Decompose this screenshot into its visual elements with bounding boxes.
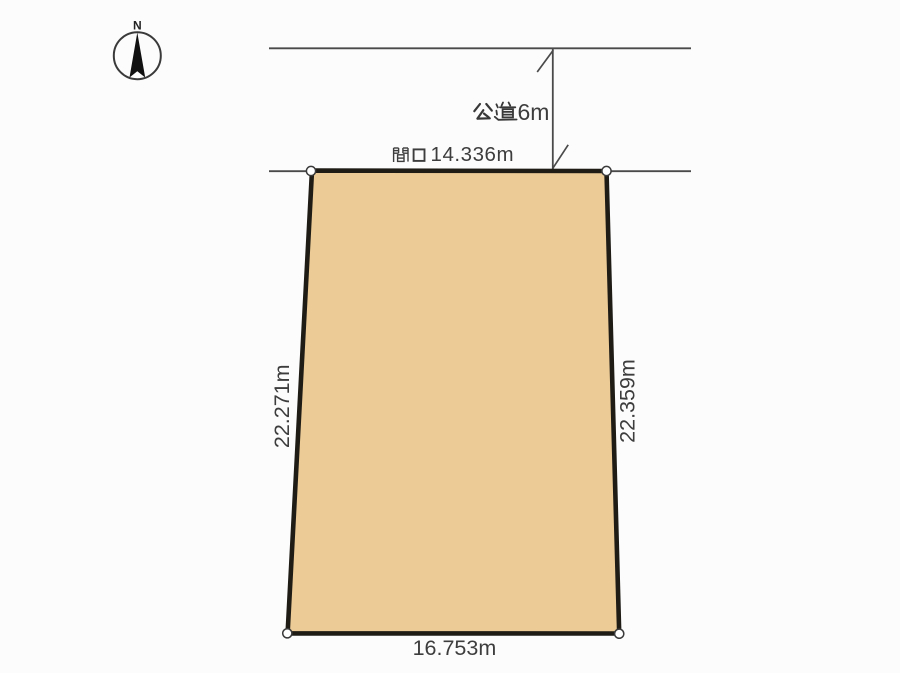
svg-text:16.753m: 16.753m xyxy=(413,636,497,660)
svg-text:22.271m: 22.271m xyxy=(270,364,294,448)
svg-text:22.359m: 22.359m xyxy=(616,359,640,443)
svg-text:14.336m: 14.336m xyxy=(431,143,515,166)
svg-text:N: N xyxy=(133,18,142,32)
svg-text:6m: 6m xyxy=(518,99,550,125)
